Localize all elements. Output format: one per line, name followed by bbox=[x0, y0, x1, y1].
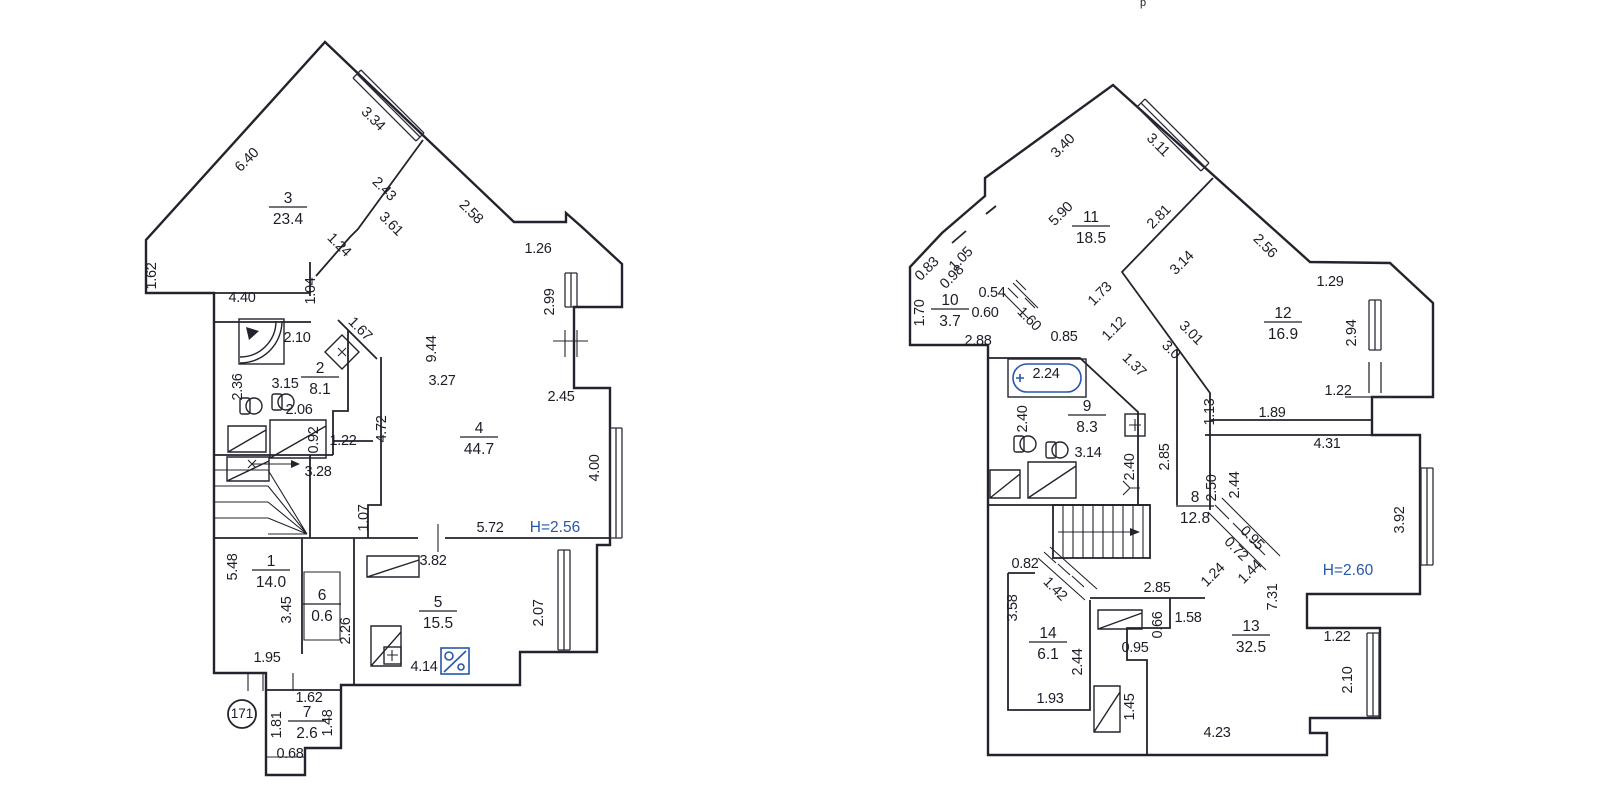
dimension-label: 2.85 bbox=[1157, 443, 1173, 470]
dimension-label: 1.95 bbox=[253, 650, 280, 666]
dimension-label: 1.37 bbox=[1119, 350, 1150, 381]
dimension-label: 1.24 bbox=[1198, 560, 1229, 591]
room-number-label: 1 bbox=[267, 553, 276, 570]
dimension-label: 0.68 bbox=[276, 746, 303, 762]
dimension-label: 1.04 bbox=[303, 277, 319, 304]
room-area-label: 44.7 bbox=[464, 441, 494, 458]
floor-plan-drawing: 6.403.342.432.583.611.241.671.624.401.04… bbox=[0, 0, 1600, 799]
floor-plan-sheet: 6.403.342.432.583.611.241.671.624.401.04… bbox=[0, 0, 1600, 799]
dimension-label: 2.10 bbox=[283, 330, 310, 346]
window-right-middle bbox=[1421, 468, 1433, 565]
room-area-label: 14.0 bbox=[256, 574, 287, 591]
room-area-label: 0.6 bbox=[311, 608, 333, 625]
dimension-label: 0.66 bbox=[1150, 611, 1166, 638]
dimension-label: 1.48 bbox=[320, 709, 336, 736]
room-area-label: 8.3 bbox=[1076, 419, 1098, 436]
dimension-label: 1.93 bbox=[1036, 691, 1063, 707]
dimension-label: 1.22 bbox=[329, 433, 356, 449]
room-area-label: 12.8 bbox=[1180, 510, 1210, 527]
dimension-label: 3.14 bbox=[1167, 248, 1198, 279]
dimension-label: 1.12 bbox=[1099, 314, 1130, 345]
kitchen-fixtures bbox=[367, 556, 469, 674]
dimension-label: 2.88 bbox=[964, 333, 991, 349]
dimension-label: 0.54 bbox=[978, 285, 1005, 301]
cropped-text-artifact: p bbox=[1140, 0, 1146, 9]
dimension-label: 2.81 bbox=[1144, 202, 1175, 233]
room-number-label: 5 bbox=[434, 594, 443, 611]
dimension-label: 4.40 bbox=[228, 290, 255, 306]
sink-plus-icon bbox=[1125, 414, 1145, 436]
dimension-labels-upper: 3.403.115.902.812.563.141.050.830.981.70… bbox=[912, 130, 1408, 741]
room-number-label: 11 bbox=[1083, 209, 1099, 226]
dimension-label: 2.44 bbox=[1227, 471, 1243, 498]
room-number-label: 3 bbox=[284, 190, 293, 207]
room-number-label: 8 bbox=[1191, 489, 1200, 506]
toilet-icon bbox=[1046, 442, 1068, 458]
dimension-label: 1.81 bbox=[269, 711, 285, 738]
window-right-upper bbox=[1345, 300, 1392, 397]
floor-plan-lower-level: 6.403.342.432.583.611.241.671.624.401.04… bbox=[144, 42, 622, 775]
outer-walls bbox=[146, 42, 622, 775]
dimension-label: 2.85 bbox=[1143, 580, 1170, 596]
dimension-label: 5.72 bbox=[476, 520, 503, 536]
room-number-label: 9 bbox=[1083, 398, 1092, 415]
dimension-label: 2.56 bbox=[1250, 231, 1281, 262]
dimension-label: 2.06 bbox=[285, 402, 312, 418]
dimension-label: 4.72 bbox=[374, 415, 390, 442]
sink-plus-icon bbox=[384, 647, 401, 664]
dimension-label: 3.14 bbox=[1074, 445, 1101, 461]
washing-machine-icon bbox=[441, 648, 469, 674]
dimension-label: 7.31 bbox=[1265, 583, 1281, 610]
stairs-direction-arrow bbox=[1130, 528, 1140, 536]
window-roof-slope bbox=[1137, 99, 1209, 171]
dimension-label: 1.22 bbox=[1324, 383, 1351, 399]
ceiling-height-label: H=2.56 bbox=[530, 519, 580, 536]
dimension-label: 1.07 bbox=[356, 504, 372, 531]
dimension-label: 4.31 bbox=[1313, 436, 1340, 452]
dimension-label: 2.36 bbox=[230, 373, 246, 400]
room-number-label: 14 bbox=[1039, 625, 1057, 642]
dimension-label: 1.67 bbox=[345, 314, 376, 345]
room-number-label: 7 bbox=[303, 704, 312, 721]
room-area-label: 15.5 bbox=[423, 615, 453, 632]
shower-head-icon bbox=[246, 327, 259, 340]
unit-number-label: 171 bbox=[231, 706, 254, 721]
dimension-label: 2.07 bbox=[531, 599, 547, 626]
dimension-label: 2.10 bbox=[1340, 666, 1356, 693]
dimension-label: 3.0 bbox=[1158, 338, 1183, 363]
dimension-label: 2.99 bbox=[542, 288, 558, 315]
dimension-label: 1.42 bbox=[1040, 574, 1071, 605]
tall-cabinet bbox=[371, 626, 401, 666]
dimension-label: 1.58 bbox=[1174, 610, 1201, 626]
room-area-label: 18.5 bbox=[1076, 230, 1106, 247]
dimension-label: 3.27 bbox=[428, 373, 455, 389]
room-number-label: 13 bbox=[1242, 618, 1259, 635]
window-right-lower bbox=[558, 550, 570, 650]
dimension-label: 2.40 bbox=[1015, 405, 1031, 432]
dimension-label: 1.24 bbox=[324, 230, 355, 261]
dimension-label: 2.44 bbox=[1070, 648, 1086, 675]
dimension-label: 2.40 bbox=[1122, 453, 1138, 480]
room-area-label: 6.1 bbox=[1037, 646, 1059, 663]
room-area-label: 32.5 bbox=[1236, 639, 1266, 656]
vanity-cabinets bbox=[990, 462, 1076, 498]
room-number-label: 6 bbox=[318, 587, 327, 604]
dimension-label: 1.70 bbox=[912, 299, 928, 326]
dimension-label: 1.89 bbox=[1258, 405, 1285, 421]
window-right-lower bbox=[1367, 633, 1379, 716]
toilet-icon bbox=[1014, 436, 1036, 452]
dimension-label: 1.29 bbox=[1316, 274, 1343, 290]
counter-cabinet bbox=[367, 556, 419, 577]
tall-cabinet bbox=[1094, 686, 1120, 732]
dimension-label: 3.15 bbox=[271, 376, 298, 392]
dimension-label: 5.90 bbox=[1046, 199, 1077, 230]
dimension-label: 3.92 bbox=[1392, 506, 1408, 533]
dimension-label: 4.00 bbox=[587, 454, 603, 481]
scan-artifact-text: p bbox=[1140, 0, 1146, 9]
dimension-label: 0.92 bbox=[306, 426, 322, 453]
dimension-label: 0.95 bbox=[1121, 640, 1148, 656]
counter-cabinet bbox=[1098, 610, 1142, 629]
dimension-label: 3.28 bbox=[304, 464, 331, 480]
dimension-label: 0.60 bbox=[971, 305, 998, 321]
room-area-label: 16.9 bbox=[1268, 326, 1298, 343]
window-roof-slope bbox=[353, 70, 424, 141]
room-number-label: 4 bbox=[475, 420, 484, 437]
dimension-label: 9.44 bbox=[424, 335, 440, 362]
staircase bbox=[214, 460, 307, 534]
window-right-middle bbox=[610, 428, 622, 538]
room-area-label: 8.1 bbox=[309, 381, 331, 398]
room-area-label: 23.4 bbox=[273, 211, 304, 228]
dimension-label: 3.61 bbox=[376, 209, 407, 240]
dimension-label: 1.45 bbox=[1122, 693, 1138, 720]
dimension-label: 1.62 bbox=[144, 262, 160, 289]
dimension-label: 2.50 bbox=[1204, 474, 1220, 501]
dimension-label: 3.82 bbox=[419, 553, 446, 569]
dimension-label: 4.14 bbox=[410, 659, 437, 675]
room-number-label: 10 bbox=[941, 292, 959, 309]
dimension-label: 0.82 bbox=[1011, 556, 1038, 572]
ceiling-height-label: H=2.60 bbox=[1323, 562, 1374, 579]
room-area-label: 2.6 bbox=[296, 725, 318, 742]
dimension-label: 2.45 bbox=[547, 389, 574, 405]
window-bay-top bbox=[565, 273, 577, 307]
dimension-label: 1.22 bbox=[1323, 629, 1350, 645]
dimension-label: 1.13 bbox=[1202, 398, 1218, 425]
stairs-direction-arrow bbox=[291, 460, 300, 468]
dimension-label: 6.40 bbox=[232, 145, 263, 176]
dimension-label: 1.73 bbox=[1085, 279, 1116, 310]
dimension-label: 3.45 bbox=[279, 596, 295, 623]
room-number-label: 12 bbox=[1274, 305, 1291, 322]
dimension-label: 2.94 bbox=[1344, 319, 1360, 346]
dimension-label: 5.48 bbox=[225, 553, 241, 580]
dimension-label: 2.24 bbox=[1032, 366, 1059, 382]
dimension-label: 3.40 bbox=[1048, 131, 1079, 162]
room-area-label: 3.7 bbox=[939, 313, 961, 330]
dimension-label: 0.85 bbox=[1050, 329, 1077, 345]
floor-plan-upper-level: 3.403.115.902.812.563.141.050.830.981.70… bbox=[910, 85, 1433, 755]
room-number-label: 2 bbox=[316, 360, 325, 377]
dimension-label: 1.26 bbox=[524, 241, 551, 257]
dimension-label: 2.58 bbox=[456, 197, 487, 228]
dimension-label: 2.26 bbox=[338, 617, 354, 644]
dimension-label: 3.01 bbox=[1176, 318, 1207, 349]
dimension-label: 4.23 bbox=[1203, 725, 1230, 741]
dimension-label: 3.58 bbox=[1005, 594, 1021, 621]
staircase bbox=[1053, 505, 1150, 558]
